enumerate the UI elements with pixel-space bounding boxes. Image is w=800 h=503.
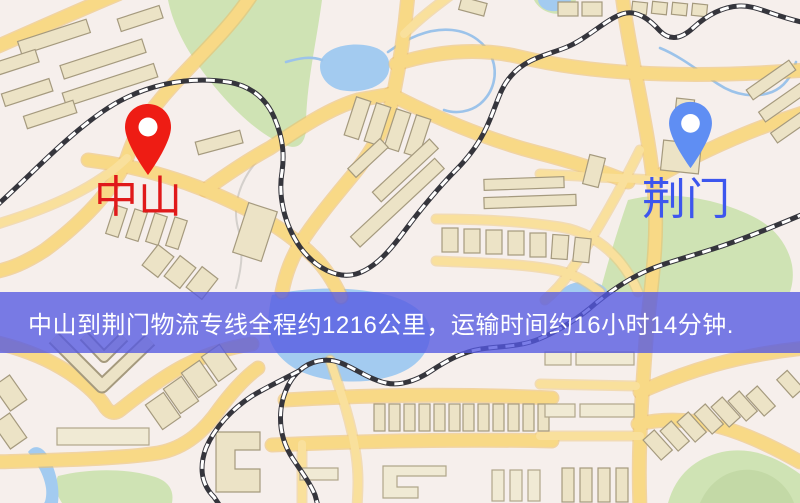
destination-label: 荆门 xyxy=(642,178,730,222)
destination-pin-icon xyxy=(668,101,713,170)
map-viewport: 中山 荆门 中山到荆门物流专线全程约1216公里，运输时间约16小时14分钟. xyxy=(0,0,800,503)
route-info-banner: 中山到荆门物流专线全程约1216公里，运输时间约16小时14分钟. xyxy=(0,292,800,353)
destination-pin-shape xyxy=(669,102,712,168)
destination-pin[interactable] xyxy=(668,101,713,175)
origin-pin-hole xyxy=(139,118,158,137)
map-canvas[interactable] xyxy=(0,0,800,503)
destination-pin-hole xyxy=(681,114,700,133)
origin-pin[interactable] xyxy=(124,103,172,182)
origin-pin-shape xyxy=(125,104,171,175)
route-info-text: 中山到荆门物流专线全程约1216公里，运输时间约16小时14分钟. xyxy=(28,305,734,340)
origin-label: 中山 xyxy=(94,176,182,220)
origin-pin-icon xyxy=(124,103,172,177)
